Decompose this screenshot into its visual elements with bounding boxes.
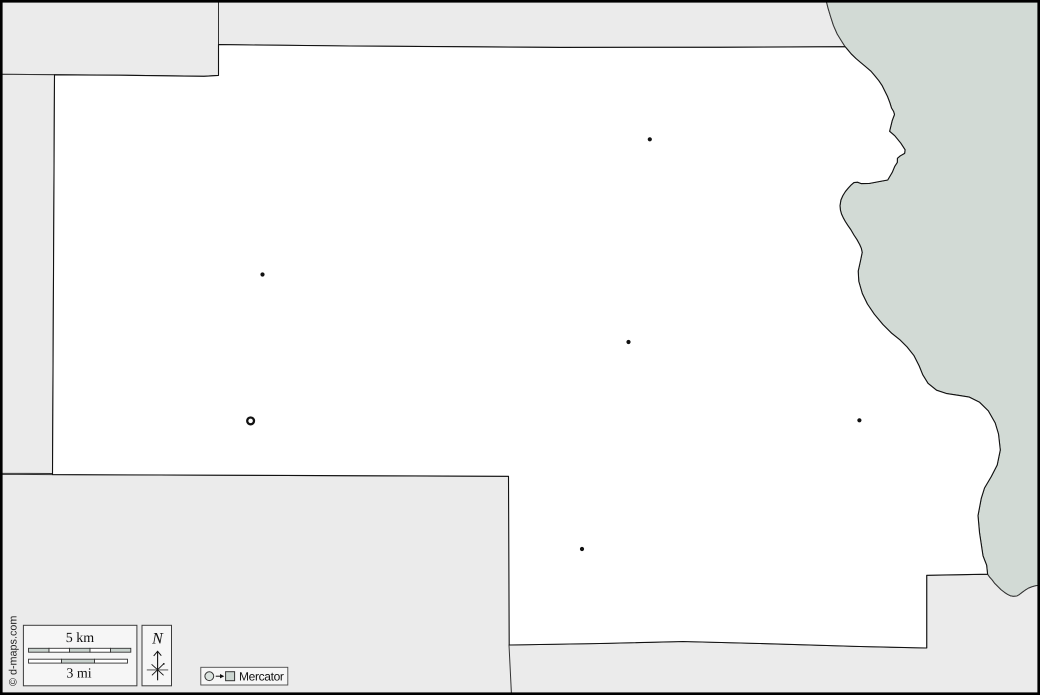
svg-text:© d-maps.com: © d-maps.com — [8, 616, 20, 686]
svg-text:3 mi: 3 mi — [66, 667, 91, 682]
svg-text:N: N — [151, 631, 164, 648]
svg-text:5 km: 5 km — [66, 631, 95, 646]
svg-text:Mercator: Mercator — [239, 670, 284, 684]
